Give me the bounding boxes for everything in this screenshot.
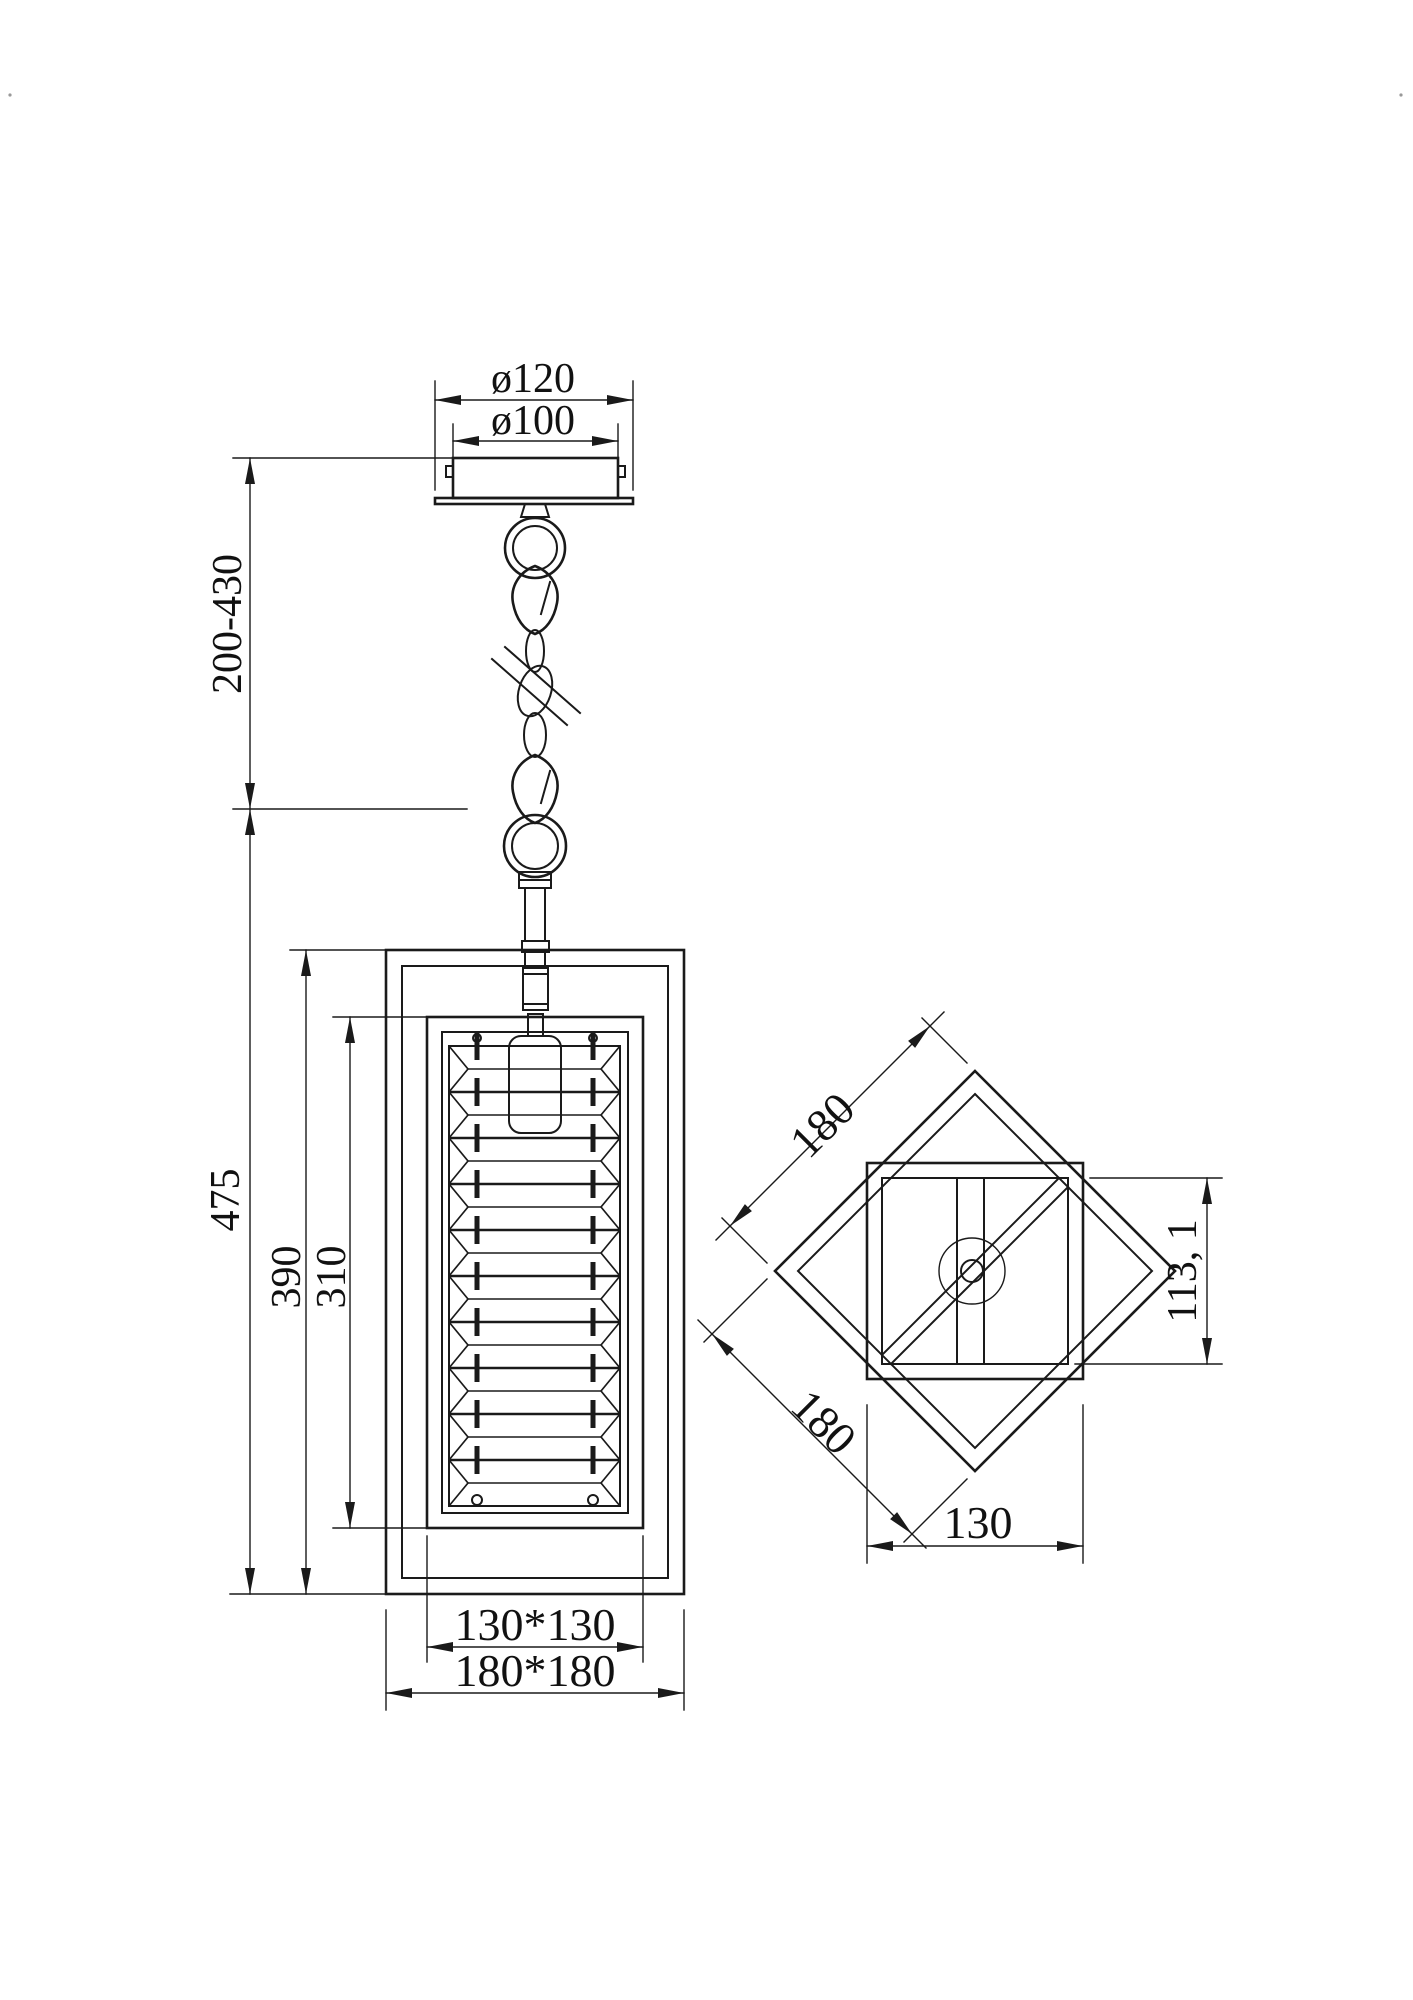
plan-rod-circle [961,1260,983,1282]
lamp-body [386,950,684,1594]
page-dot-right [1399,93,1402,96]
dim-plan-side-top: 180 [780,1083,865,1168]
width-dimensions: 130*130 180*180 [386,1536,684,1710]
suspension-rod [525,888,545,941]
suspension-chain [492,518,580,1036]
dim-outer-frame-height: 390 [264,1246,310,1309]
dim-suspension-range: 200-430 [205,554,251,694]
dim-inner-frame-height: 310 [309,1246,355,1309]
plan-socket-circle [939,1238,1005,1304]
carabiner-bottom [512,755,557,823]
canopy-dimensions: ø120 ø100 [435,356,633,490]
pendant-lamp-dimension-drawing: ø120 ø100 [0,0,1413,2000]
chain-link [524,713,546,757]
plan-dim-bottom-left: 180 [698,1279,967,1548]
dim-canopy-outer-diameter: ø120 [491,356,575,402]
front-view: ø120 ø100 [203,356,684,1710]
plan-dim-bottom: 130 [867,1405,1083,1563]
inner-frame [427,1017,643,1528]
dim-outer-frame-footprint: 180*180 [455,1645,616,1696]
crystal-stack [449,1032,620,1506]
plan-dim-right: 113, 1 [1075,1178,1222,1364]
dim-plan-side-bottom: 180 [782,1380,867,1465]
top-view: 180 180 113, 1 130 [698,1012,1222,1563]
plan-dim-top-left: 180 [716,1012,967,1263]
dim-inner-frame-footprint: 130*130 [455,1599,616,1650]
carabiner-top [512,566,557,634]
canopy-neck [521,504,549,517]
dim-plan-inner-width: 130 [944,1497,1013,1548]
technical-drawing-page: ø120 ø100 [0,0,1413,2000]
plan-inner-frame [867,1163,1083,1379]
dim-plan-inner-height: 113, 1 [1160,1219,1206,1322]
dim-total-height: 475 [203,1169,249,1232]
light-bulb [509,1036,561,1133]
plan-diagonal-brace [882,1178,1059,1355]
ceiling-canopy [435,458,633,517]
page-dot-left [8,93,11,96]
dim-canopy-inner-diameter: ø100 [491,398,575,444]
